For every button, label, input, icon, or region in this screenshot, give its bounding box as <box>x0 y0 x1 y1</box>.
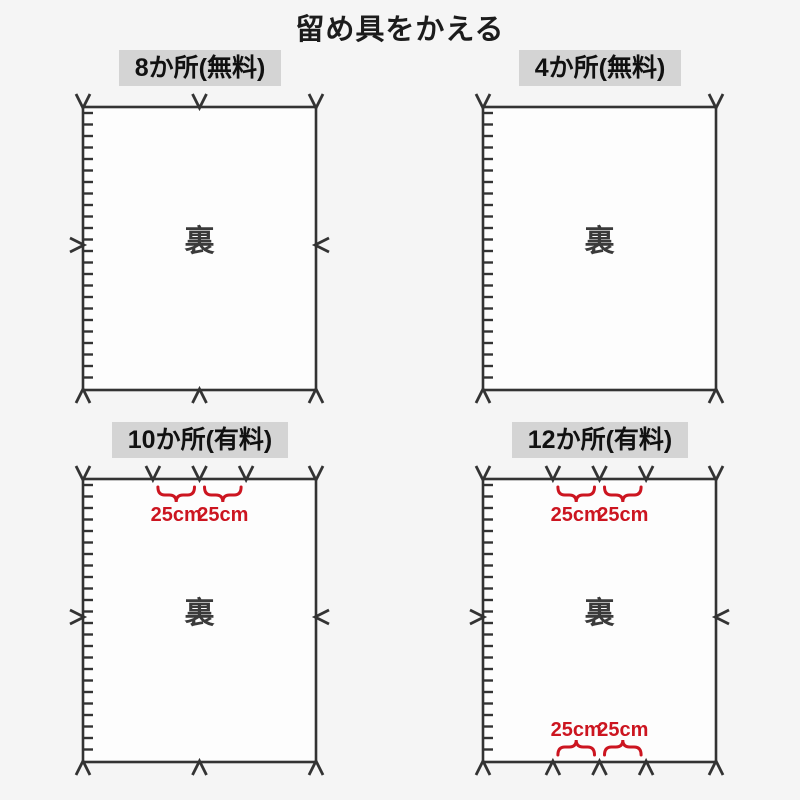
fastener-diagram: 裏 <box>460 87 740 423</box>
back-side-label: 裏 <box>585 224 616 258</box>
panel-header: 10か所(有料) <box>112 422 288 458</box>
fastener-diagram: 裏25cm25cm25cm25cm <box>460 459 740 795</box>
panel-10-places: 10か所(有料) 裏25cm25cm <box>0 422 400 795</box>
back-side-label: 裏 <box>585 596 616 630</box>
fastener-diagram: 裏25cm25cm <box>60 459 340 795</box>
panel-header: 4か所(無料) <box>519 50 682 86</box>
back-side-label: 裏 <box>185 596 216 630</box>
measure-label: 25cm <box>597 719 648 741</box>
panel-header-label: 12か所(有料) <box>528 426 672 454</box>
panel-12-places: 12か所(有料) 裏25cm25cm25cm25cm <box>400 422 800 795</box>
panel-header: 12か所(有料) <box>512 422 688 458</box>
panel-header-label: 8か所(無料) <box>135 54 266 82</box>
back-side-label: 裏 <box>185 224 216 258</box>
measure-label: 25cm <box>551 719 602 741</box>
measure-label: 25cm <box>151 504 202 526</box>
panel-8-places: 8か所(無料) 裏 <box>0 50 400 423</box>
measure-label: 25cm <box>551 504 602 526</box>
panel-4-places: 4か所(無料) 裏 <box>400 50 800 423</box>
fastener-diagram: 裏 <box>60 87 340 423</box>
page-title: 留め具をかえる <box>0 6 800 48</box>
measure-label: 25cm <box>197 504 248 526</box>
panel-header-label: 10か所(有料) <box>128 426 272 454</box>
measure-label: 25cm <box>597 504 648 526</box>
panel-header-label: 4か所(無料) <box>535 54 666 82</box>
panel-header: 8か所(無料) <box>119 50 282 86</box>
